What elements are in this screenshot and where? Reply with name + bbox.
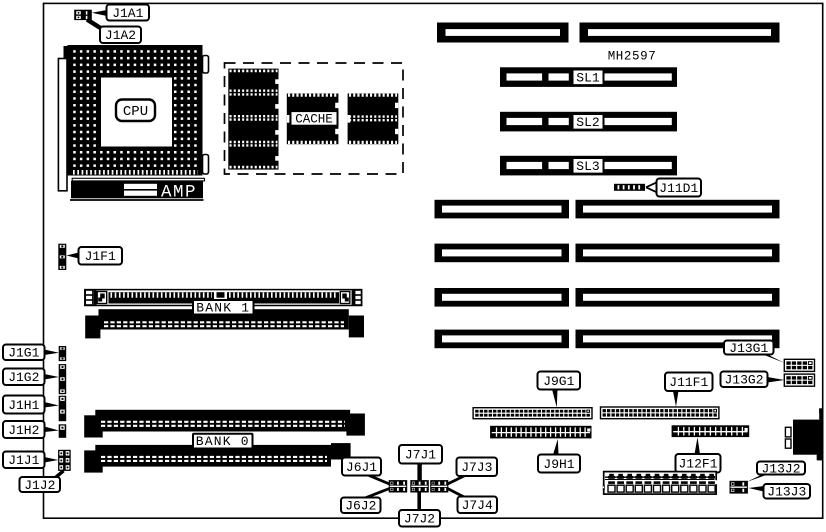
svg-text:SL1: SL1 [576, 71, 600, 86]
svg-text:SL3: SL3 [576, 159, 599, 174]
svg-text:MH2597: MH2597 [608, 50, 657, 64]
svg-text:J11D1: J11D1 [659, 181, 698, 196]
svg-text:J11F1: J11F1 [669, 375, 708, 390]
svg-text:CPU: CPU [123, 104, 148, 120]
svg-text:CACHE: CACHE [295, 112, 333, 126]
svg-text:J7J3: J7J3 [461, 460, 492, 475]
svg-text:J9H1: J9H1 [543, 457, 574, 472]
svg-text:BANK 0: BANK 0 [196, 434, 250, 449]
svg-text:J13G1: J13G1 [729, 341, 768, 356]
svg-text:J13J2: J13J2 [761, 461, 800, 476]
svg-text:J9G1: J9G1 [543, 374, 574, 389]
svg-text:J1G1: J1G1 [8, 346, 39, 361]
svg-text:J13J3: J13J3 [767, 485, 806, 500]
svg-text:J1A2: J1A2 [105, 28, 136, 43]
svg-text:J6J2: J6J2 [345, 499, 376, 514]
svg-text:J1H1: J1H1 [8, 398, 39, 413]
svg-text:BANK 1: BANK 1 [196, 300, 250, 315]
svg-text:J12F1: J12F1 [678, 457, 717, 472]
svg-text:J1J1: J1J1 [8, 453, 39, 468]
svg-text:J1H2: J1H2 [8, 423, 39, 438]
svg-text:J6J1: J6J1 [346, 460, 377, 475]
svg-text:J7J1: J7J1 [405, 448, 436, 463]
svg-text:J1F1: J1F1 [85, 249, 116, 264]
svg-text:J13G2: J13G2 [724, 373, 763, 388]
svg-text:J1J2: J1J2 [24, 478, 55, 493]
svg-text:J1G2: J1G2 [8, 370, 39, 385]
svg-text:J7J4: J7J4 [462, 498, 493, 513]
svg-text:J1A1: J1A1 [112, 6, 143, 21]
svg-text:J7J2: J7J2 [404, 512, 435, 527]
svg-text:SL2: SL2 [576, 115, 599, 130]
